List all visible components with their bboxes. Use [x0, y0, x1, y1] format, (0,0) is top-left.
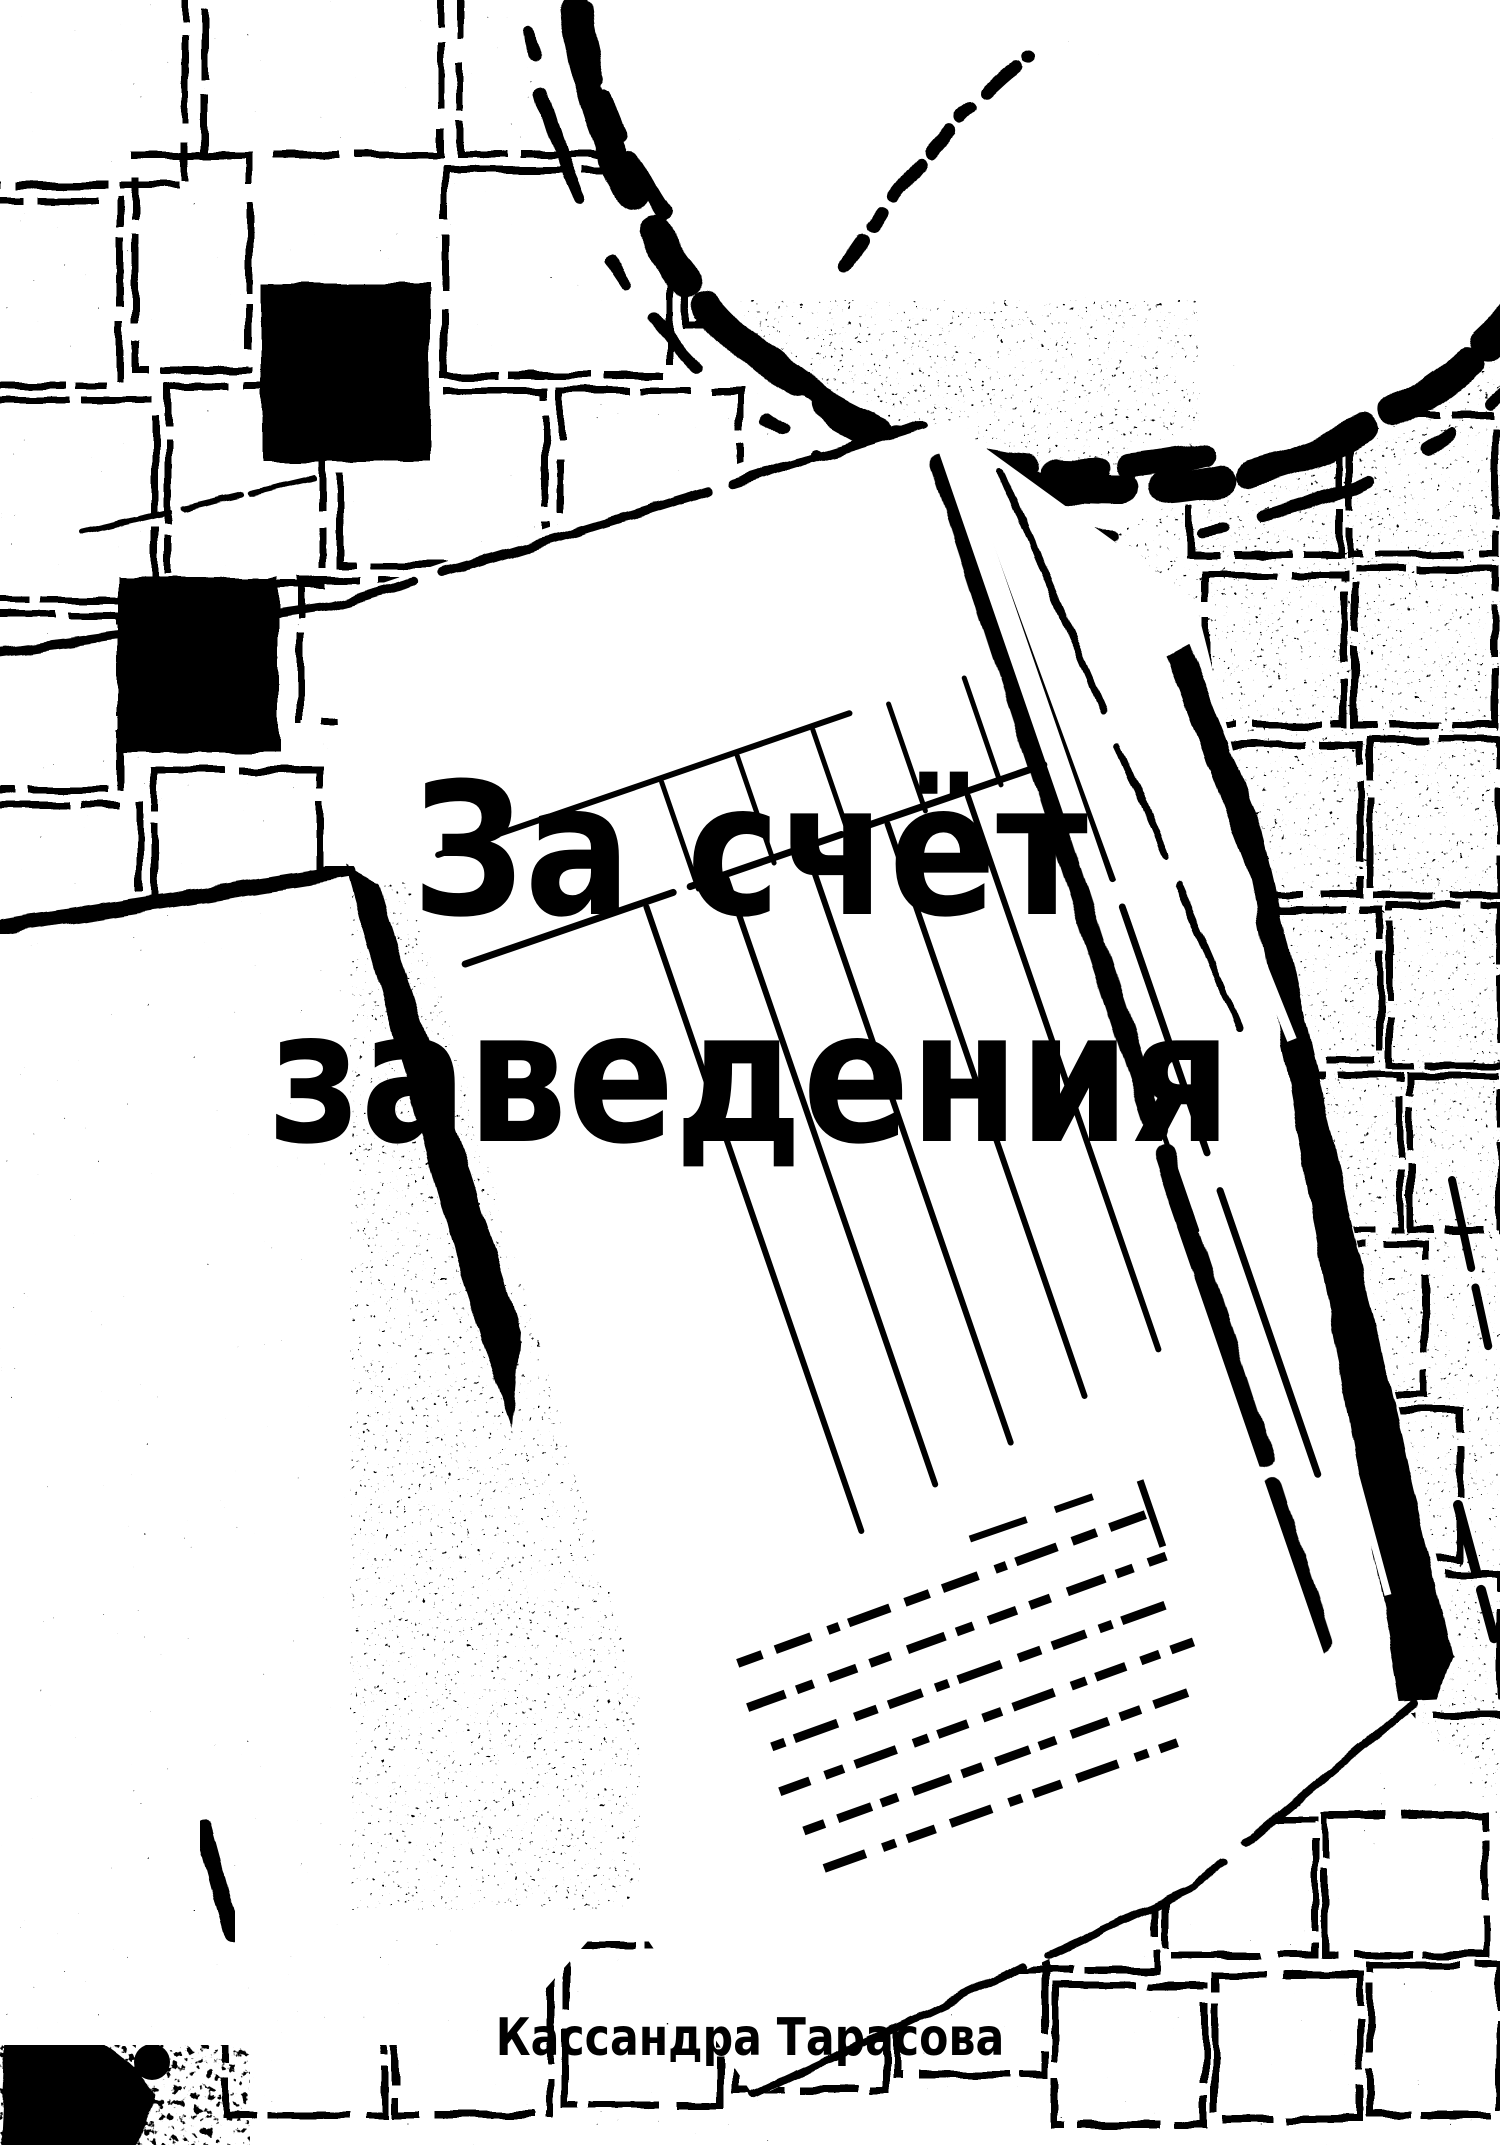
book-title: За счётзаведения [105, 738, 1395, 1192]
book-author: Кассандра Тарасова [135, 2012, 1365, 2064]
title-line-2: заведения [268, 971, 1231, 1185]
book-cover: За счётзаведения Кассандра Тарасова [0, 0, 1500, 2145]
title-line-1: За счёт [412, 744, 1088, 958]
